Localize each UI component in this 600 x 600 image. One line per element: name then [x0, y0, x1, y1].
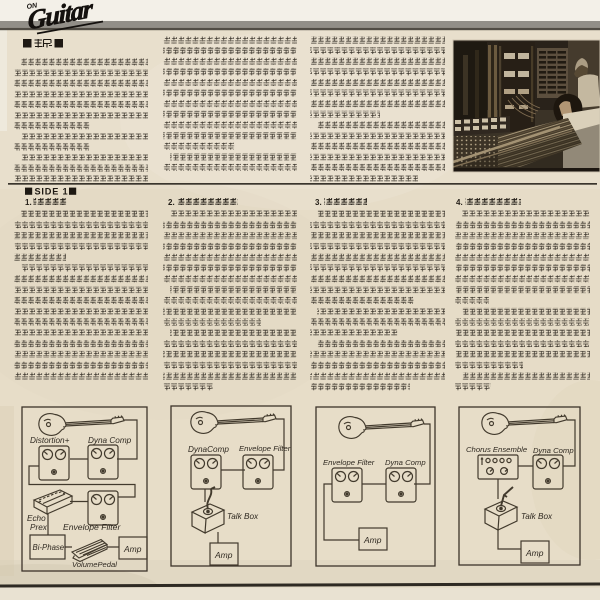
svg-text:SIDE 1: SIDE 1	[35, 187, 69, 197]
svg-text:Distortion+: Distortion+	[30, 436, 70, 445]
svg-text:3.: 3.	[315, 198, 322, 207]
svg-text:Chorus Ensemble: Chorus Ensemble	[466, 445, 527, 454]
svg-text:Echo: Echo	[27, 514, 46, 523]
svg-text:Envelope Filter: Envelope Filter	[323, 458, 375, 467]
svg-text:Dyna Comp: Dyna Comp	[385, 458, 426, 467]
svg-text:Talk Box: Talk Box	[227, 512, 259, 521]
svg-text:Envelope Filter: Envelope Filter	[63, 522, 121, 532]
svg-text:Bi-Phase: Bi-Phase	[33, 543, 65, 552]
svg-text:4.: 4.	[456, 198, 463, 207]
svg-text:Prex: Prex	[30, 523, 48, 532]
svg-text:Envelope Filter: Envelope Filter	[239, 444, 291, 453]
svg-text:Talk Box: Talk Box	[521, 512, 553, 521]
svg-text:DynaComp: DynaComp	[188, 445, 229, 454]
svg-text:Dyna Comp: Dyna Comp	[88, 436, 132, 445]
svg-text:Dyna Comp: Dyna Comp	[533, 446, 574, 455]
svg-text:1.: 1.	[25, 198, 32, 207]
svg-text:2.: 2.	[168, 198, 175, 207]
svg-text:VolumePedal: VolumePedal	[72, 560, 117, 569]
